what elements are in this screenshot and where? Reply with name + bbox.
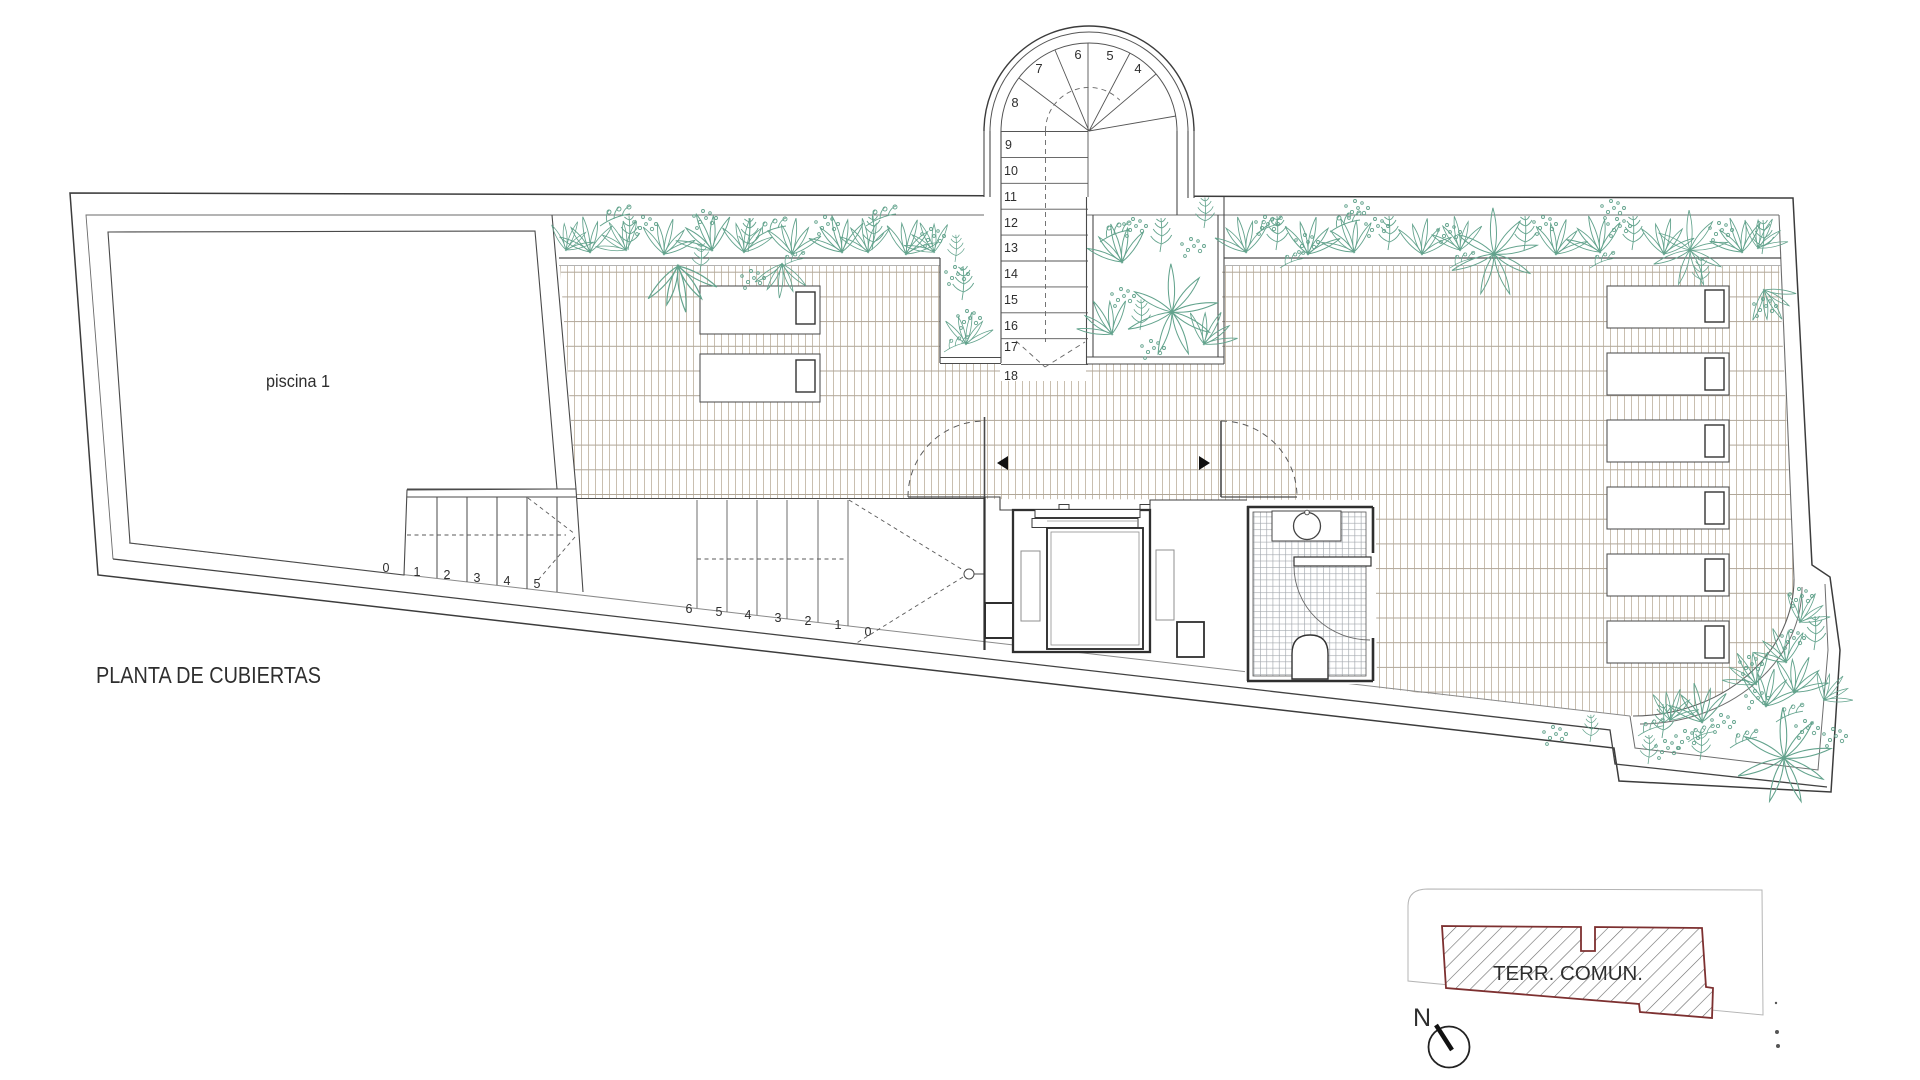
svg-text:4: 4	[504, 574, 511, 588]
svg-text:5: 5	[1106, 48, 1113, 63]
svg-text:0: 0	[865, 625, 872, 639]
svg-text:1: 1	[414, 565, 421, 579]
svg-text:12: 12	[1004, 216, 1018, 230]
svg-text:5: 5	[534, 577, 541, 591]
svg-text:PLANTA DE CUBIERTAS: PLANTA DE CUBIERTAS	[96, 662, 321, 688]
svg-text:16: 16	[1004, 319, 1018, 333]
svg-text:7: 7	[1035, 61, 1042, 76]
svg-text:piscina 1: piscina 1	[266, 371, 330, 391]
svg-text:N: N	[1413, 1004, 1431, 1032]
svg-text:2: 2	[805, 614, 812, 628]
svg-text:15: 15	[1004, 293, 1018, 307]
svg-text:4: 4	[1134, 61, 1141, 76]
svg-text:6: 6	[686, 602, 693, 616]
svg-text:9: 9	[1005, 138, 1012, 152]
svg-text:18: 18	[1004, 369, 1018, 383]
svg-text:2: 2	[444, 568, 451, 582]
svg-text:5: 5	[716, 605, 723, 619]
svg-text:3: 3	[775, 611, 782, 625]
svg-text:3: 3	[474, 571, 481, 585]
svg-text:0: 0	[383, 561, 390, 575]
svg-text:1: 1	[835, 618, 842, 632]
svg-text:10: 10	[1004, 164, 1018, 178]
svg-text:11: 11	[1004, 190, 1017, 204]
svg-text:14: 14	[1004, 267, 1018, 281]
svg-text:4: 4	[745, 608, 752, 622]
svg-text:17: 17	[1004, 340, 1018, 354]
svg-text:6: 6	[1074, 47, 1081, 62]
svg-text:8: 8	[1011, 95, 1018, 110]
svg-text:13: 13	[1004, 241, 1018, 255]
svg-text:TERR. COMUN.: TERR. COMUN.	[1493, 963, 1643, 985]
